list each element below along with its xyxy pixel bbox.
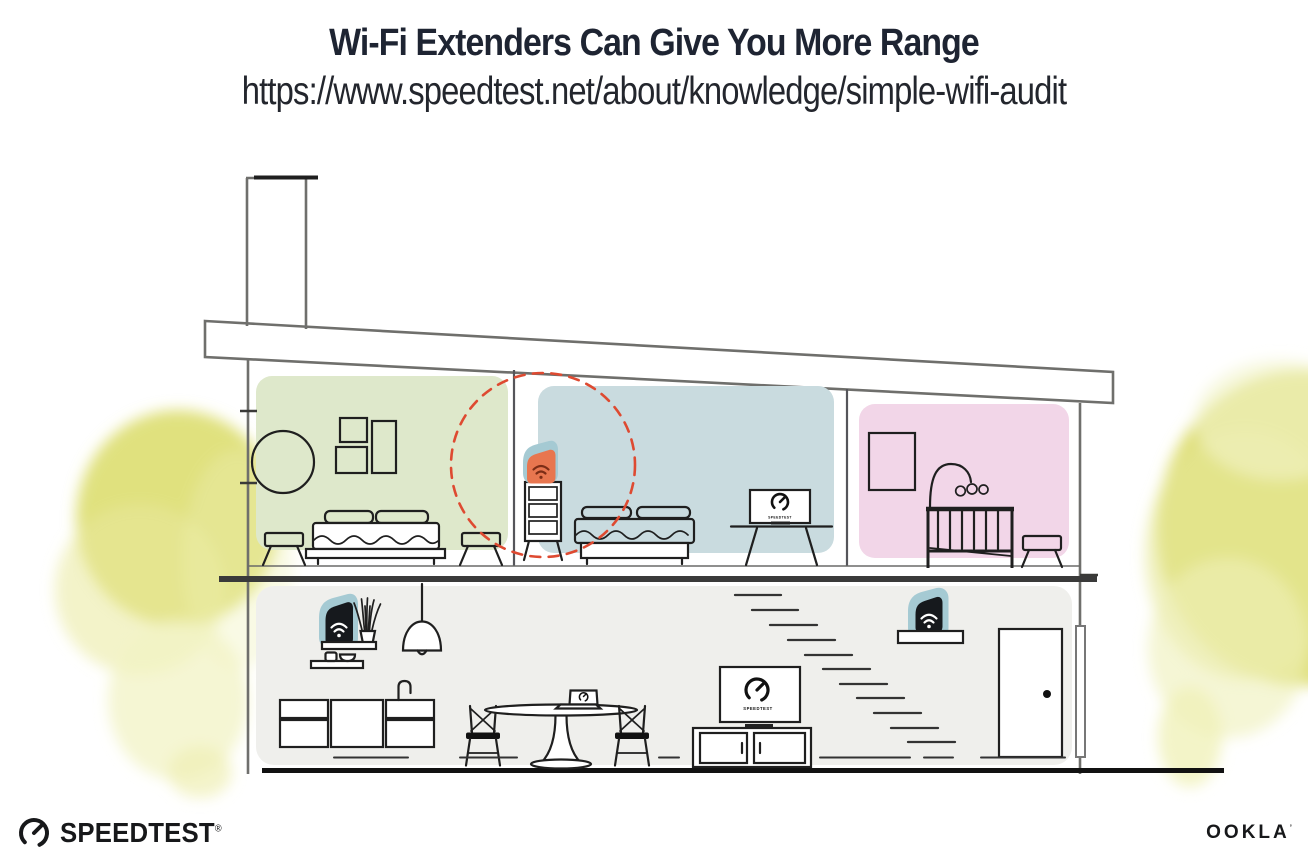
front-door	[999, 629, 1062, 757]
bowl	[340, 655, 355, 662]
registered-mark: ®	[215, 824, 222, 835]
chimney	[246, 178, 318, 330]
foliage-right	[1145, 360, 1308, 787]
cup	[326, 653, 337, 662]
infographic-page: Wi-Fi Extenders Can Give You More Range …	[0, 0, 1308, 861]
tv-stand	[693, 728, 811, 767]
house-cross-section-illustration: SPEEDTEST	[0, 0, 1308, 861]
ookla-logo: OOKLA’	[1206, 822, 1292, 844]
bedroom-blue-wall	[538, 386, 834, 553]
wifi-extender-badge-orange	[523, 441, 558, 484]
shelf-board	[898, 631, 963, 643]
speedtest-gauge-icon	[16, 815, 52, 851]
shelf-board	[322, 642, 376, 649]
ookla-wordmark: OOKLA	[1206, 822, 1290, 843]
trademark-mark: ’	[1290, 824, 1292, 835]
svg-text:SPEEDTEST: SPEEDTEST	[768, 516, 792, 520]
door-knob	[1043, 690, 1051, 698]
tv-living-room: SPEEDTEST	[720, 667, 800, 727]
shelf-board	[311, 661, 363, 668]
speedtest-logo: SPEEDTEST®	[16, 815, 236, 851]
speedtest-wordmark: SPEEDTEST®	[60, 817, 222, 849]
svg-text:SPEEDTEST: SPEEDTEST	[743, 706, 772, 711]
door-trim	[1076, 626, 1085, 757]
